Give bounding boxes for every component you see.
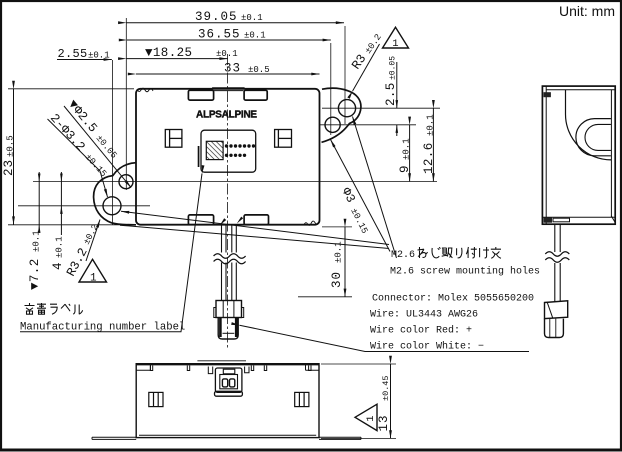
svg-text:13: 13 <box>377 414 391 431</box>
svg-text:M2.6: M2.6 <box>391 250 415 261</box>
svg-text:±0.05: ±0.05 <box>389 56 398 80</box>
svg-text:±0.1: ±0.1 <box>32 230 42 252</box>
svg-text:±0.5: ±0.5 <box>6 135 16 157</box>
svg-text:4: 4 <box>51 262 65 270</box>
svg-text:1: 1 <box>365 415 377 421</box>
svg-text:±0.1: ±0.1 <box>55 236 65 258</box>
svg-text:±0.1: ±0.1 <box>241 13 263 23</box>
svg-text:±0.5: ±0.5 <box>248 65 270 75</box>
svg-text:Connector: Molex 5055650200: Connector: Molex 5055650200 <box>372 293 534 305</box>
svg-text:Wire color White: −: Wire color White: − <box>370 341 484 353</box>
svg-text:Manufacturing number label: Manufacturing number label <box>20 322 185 334</box>
svg-text:2.55: 2.55 <box>58 47 88 61</box>
svg-text:±0.1: ±0.1 <box>88 51 110 61</box>
svg-text:M2.6 screw mounting holes: M2.6 screw mounting holes <box>390 266 540 278</box>
svg-text:Wire color Red: +: Wire color Red: + <box>370 325 472 337</box>
svg-text:±0.1: ±0.1 <box>402 138 412 160</box>
svg-text:±0.45: ±0.45 <box>381 375 391 401</box>
svg-text:ALPSALPINE: ALPSALPINE <box>196 109 257 120</box>
svg-text:▼7.2: ▼7.2 <box>28 258 42 290</box>
svg-text:±0.1: ±0.1 <box>244 31 266 41</box>
svg-text:2.5: 2.5 <box>384 82 398 106</box>
svg-text:±0.1: ±0.1 <box>426 114 436 136</box>
svg-text:23: 23 <box>2 159 16 176</box>
svg-text:1: 1 <box>392 38 398 50</box>
svg-text:±0.1: ±0.1 <box>216 49 238 59</box>
svg-text:9: 9 <box>398 165 412 173</box>
svg-text:12.6: 12.6 <box>422 142 436 174</box>
svg-text:▼18.25: ▼18.25 <box>145 46 192 60</box>
svg-text:Wire: UL3443 AWG26: Wire: UL3443 AWG26 <box>370 309 478 321</box>
svg-text:Unit: mm: Unit: mm <box>559 3 615 19</box>
svg-text:39.05: 39.05 <box>195 10 238 24</box>
svg-text:30: 30 <box>330 271 344 288</box>
svg-text:33: 33 <box>224 62 241 76</box>
svg-text:36.55: 36.55 <box>198 28 241 42</box>
svg-text:1: 1 <box>90 273 97 285</box>
